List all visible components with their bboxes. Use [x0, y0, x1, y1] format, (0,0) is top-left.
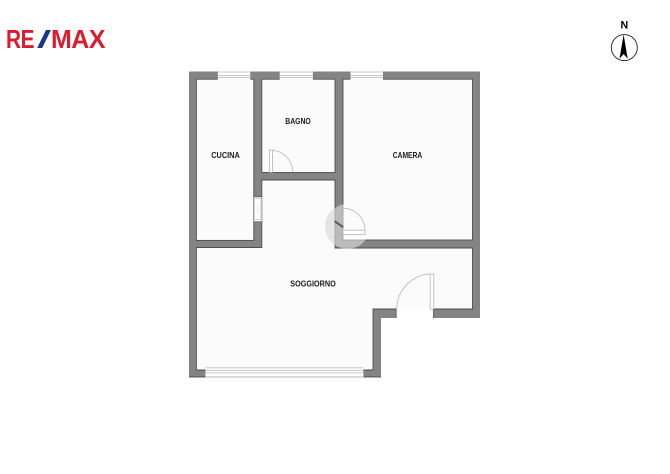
- svg-text:CAMERA: CAMERA: [393, 150, 423, 160]
- svg-text:SOGGIORNO: SOGGIORNO: [290, 279, 336, 289]
- svg-text:BAGNO: BAGNO: [285, 116, 311, 126]
- svg-text:N: N: [620, 20, 628, 32]
- svg-text:CUCINA: CUCINA: [211, 150, 240, 160]
